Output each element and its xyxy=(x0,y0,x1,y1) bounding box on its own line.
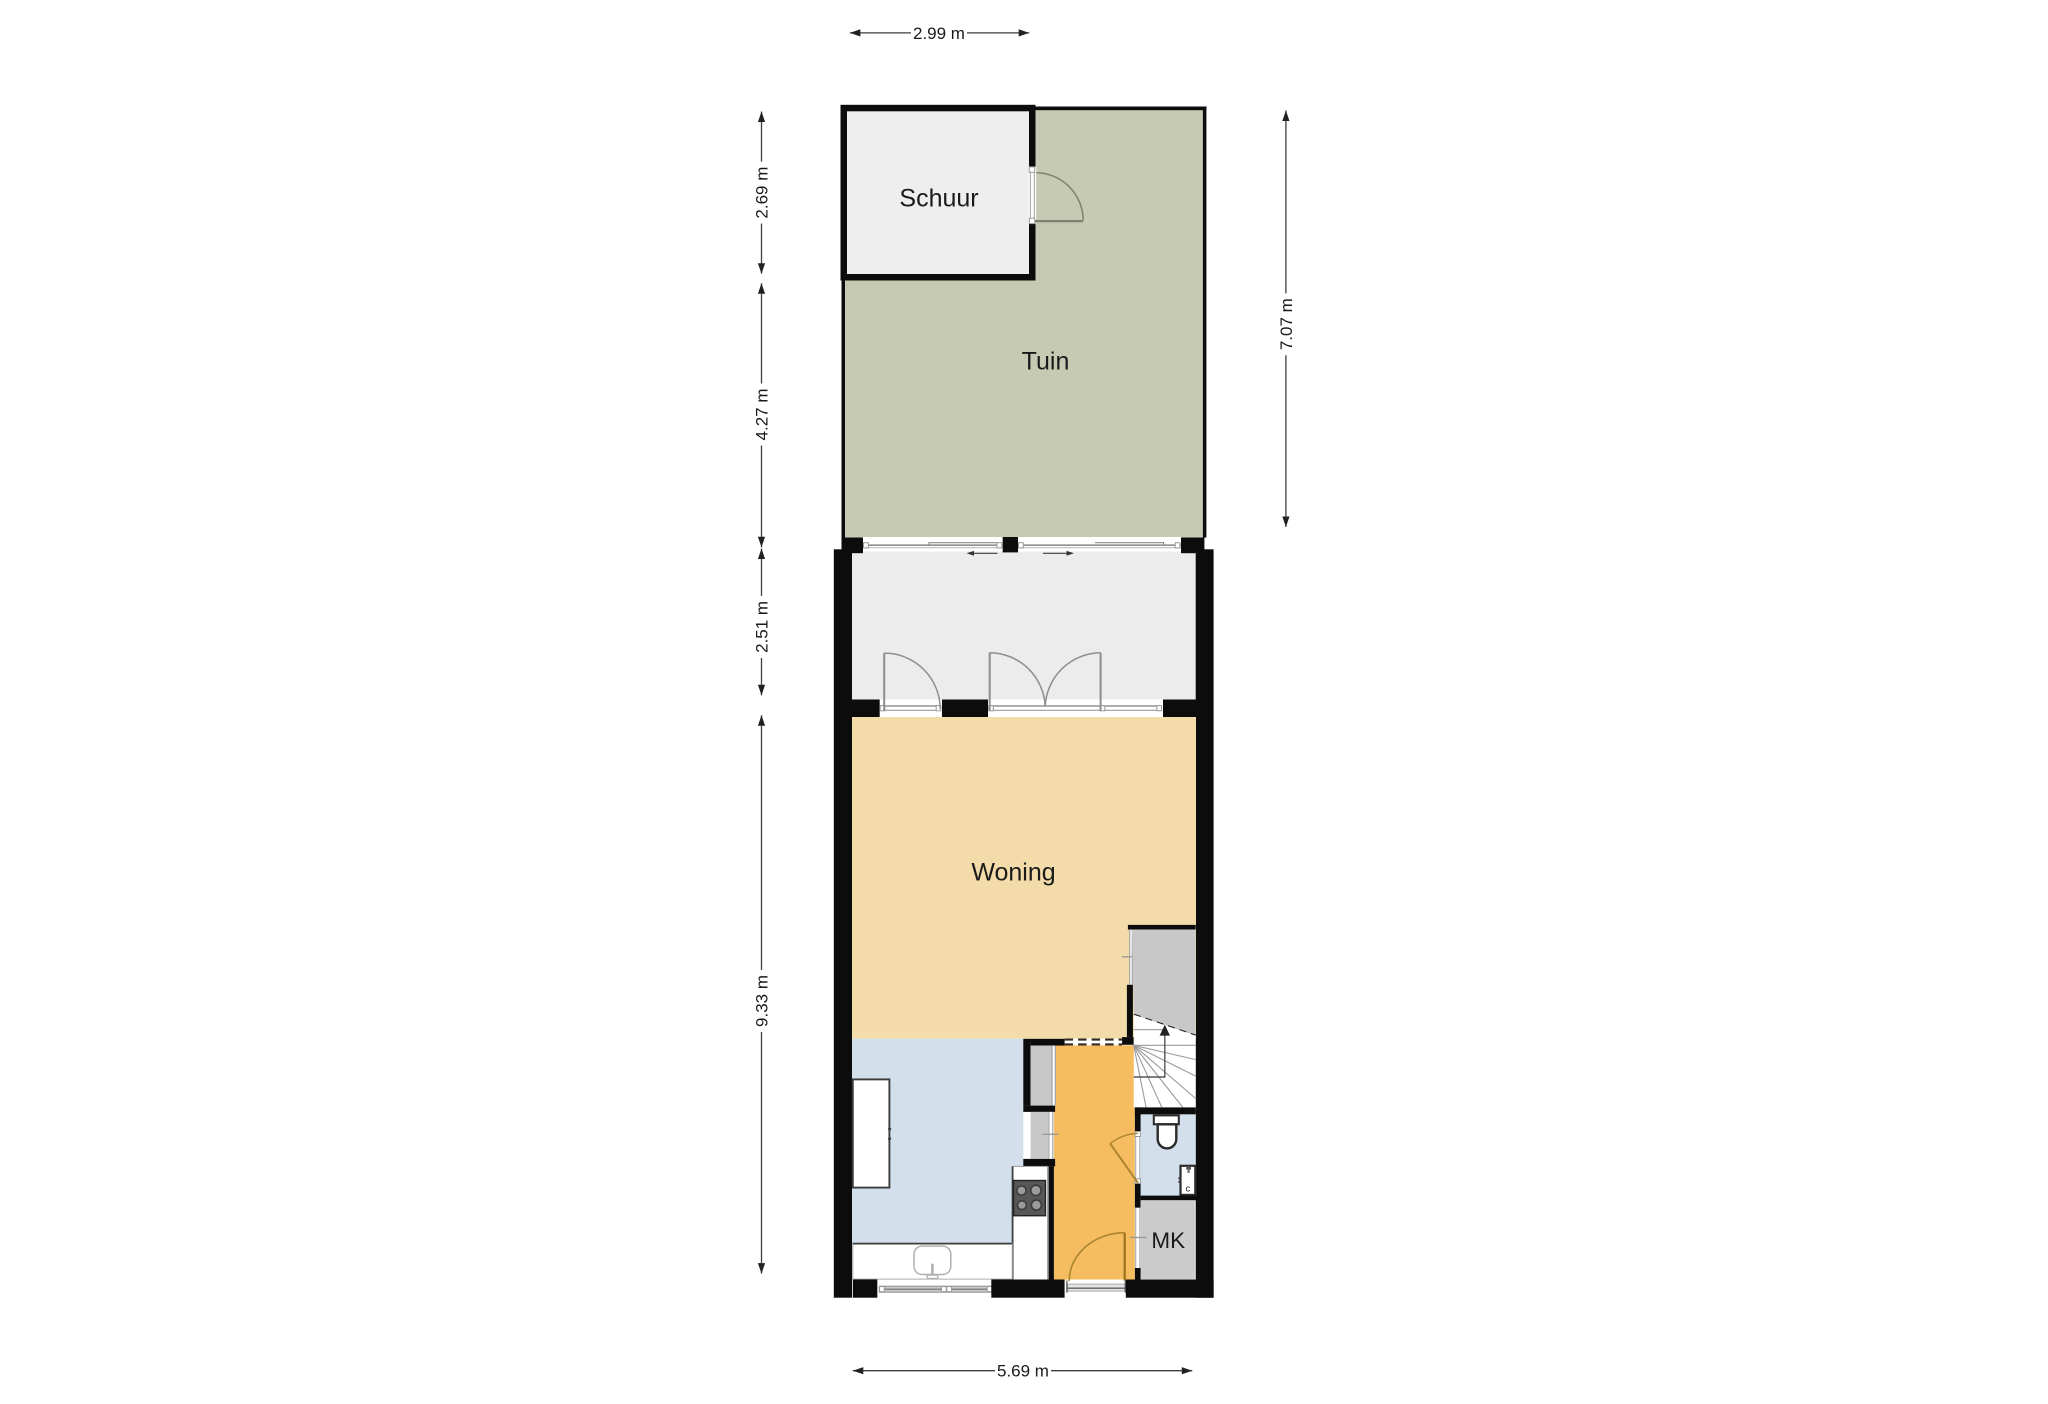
svg-text:c: c xyxy=(1186,1183,1191,1193)
svg-text:MK: MK xyxy=(1151,1228,1185,1253)
svg-text:9.33 m: 9.33 m xyxy=(753,975,772,1027)
svg-text:2.51 m: 2.51 m xyxy=(753,601,772,653)
svg-text:4.27 m: 4.27 m xyxy=(753,389,772,441)
svg-text:Schuur: Schuur xyxy=(899,185,978,213)
svg-text:Tuin: Tuin xyxy=(1022,348,1070,376)
svg-text:Woning: Woning xyxy=(971,858,1055,886)
svg-text:2.69 m: 2.69 m xyxy=(753,167,772,219)
svg-text:5.69 m: 5.69 m xyxy=(997,1362,1049,1381)
svg-text:7.07 m: 7.07 m xyxy=(1277,298,1296,350)
svg-text:2.99 m: 2.99 m xyxy=(913,24,965,43)
